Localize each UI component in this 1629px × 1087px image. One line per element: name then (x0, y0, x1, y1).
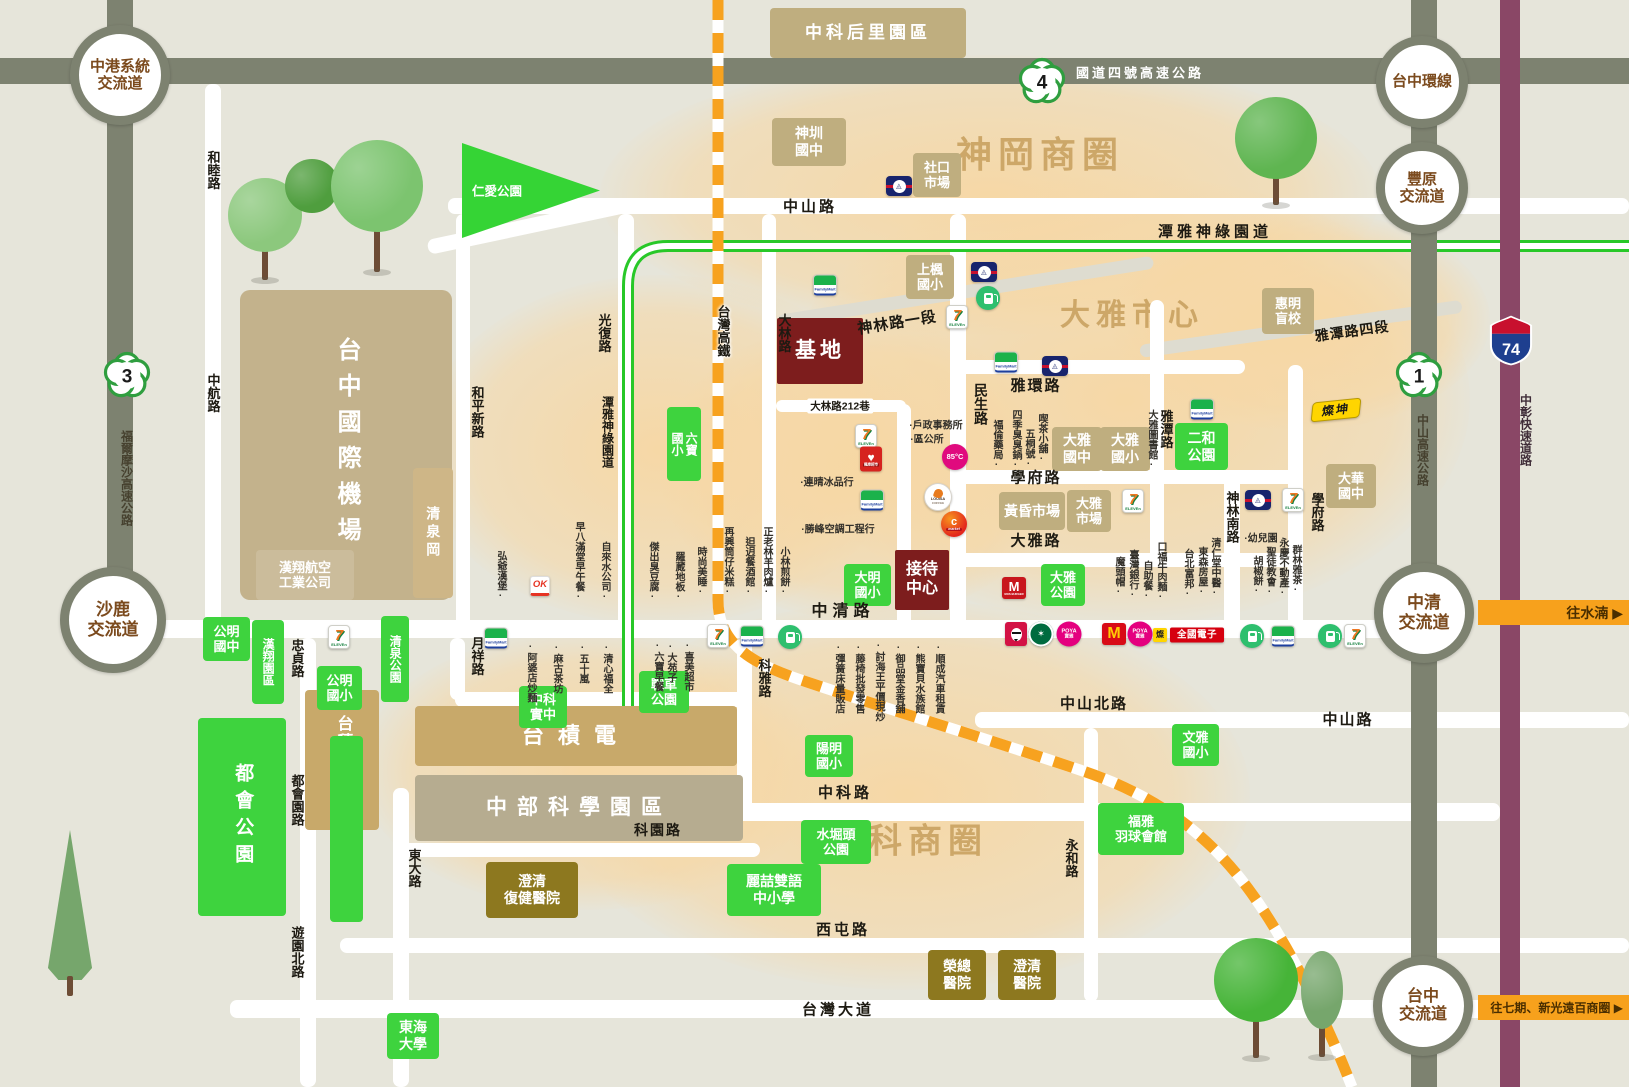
poya-icon: POYA寶雅 (1057, 622, 1082, 647)
tree-icon (41, 830, 99, 1000)
block-label: 榮總 醫院 (943, 958, 971, 991)
road-label: 台灣大道 (802, 999, 874, 1020)
highway-label: 福爾摩沙高速公路 (119, 430, 136, 526)
ok-mart-icon: OK (530, 576, 550, 596)
block-label: 中科后里園區 (805, 23, 931, 43)
85c-cafe-icon: 85°C (942, 444, 968, 470)
block-label: 公明 國小 (326, 673, 352, 704)
park-school-block: 文雅 國小 (1172, 724, 1219, 766)
carrefour-market-icon: cmarket (941, 511, 967, 537)
facility-block: 大雅 國小 (1100, 427, 1150, 471)
tree-icon (285, 159, 339, 219)
block-label: 大雅 公園 (1050, 570, 1076, 601)
park-school-block: 六寶 國小 (667, 407, 701, 481)
facility-block: 社口 市場 (913, 153, 961, 197)
block-label: 大明 國小 (854, 570, 880, 601)
park-school-block: 東海 大學 (387, 1013, 439, 1059)
road-label: 雅潭路 (1157, 410, 1176, 449)
gas-station-icon (778, 625, 802, 649)
poi-label: 四季臭臭鍋· (1010, 410, 1020, 471)
road-keyuan (400, 843, 760, 857)
road-label: 中航路 (204, 374, 223, 413)
district-label: 神岡商圈 (956, 126, 1124, 178)
poi-label: 自來水公司· (599, 542, 609, 603)
poi-label: ·討海王平價現炒 (873, 641, 883, 722)
poi-label: 口福牛肉麵· (1155, 542, 1165, 603)
tree-icon (331, 140, 423, 278)
block-label: 文雅 國小 (1182, 730, 1208, 761)
poi-label: 胡椒餅· (1251, 556, 1261, 597)
poi-label: 時尚美睡· (695, 547, 705, 598)
facility-block: 上楓 國小 (906, 255, 954, 299)
svg-text:74: 74 (1502, 341, 1520, 359)
pxmart-icon: ◬ (1245, 490, 1271, 510)
road-label: 科園路 (634, 820, 682, 840)
park-school-block: 二和 公園 (1175, 423, 1228, 470)
road-label: 科雅路 (755, 659, 774, 698)
block-label: 福雅 羽球會館 (1115, 814, 1167, 845)
seven-eleven-icon: 7ELEVEn (1344, 624, 1366, 648)
park-school-block: 福雅 羽球會館 (1098, 803, 1184, 855)
block-label: 大雅 國小 (1111, 432, 1139, 465)
block-label: 上楓 國小 (917, 262, 943, 293)
block-label: 基地 (795, 339, 845, 364)
block-label: 澄清 復健醫院 (504, 873, 560, 906)
fengkang-supermarket-icon: ♥楓康超市 (860, 447, 882, 472)
block-label: 中部科學園區 (486, 796, 672, 821)
block-label: 六寶 國小 (670, 432, 698, 456)
highway-label: 國道四號高速公路 (1076, 63, 1204, 82)
poi-label: ·麻古茶坊 (551, 643, 561, 694)
road-label: 中山路 (1322, 709, 1373, 730)
national-highway-shield: 1 (1393, 350, 1445, 407)
national-highway-shield: 4 (1016, 56, 1068, 113)
block-label: 社口 市場 (924, 160, 950, 191)
pxmart-icon: ◬ (886, 176, 912, 196)
poi-label: ·幼兒園 (1244, 530, 1277, 545)
seven-eleven-icon: 7ELEVEn (1122, 489, 1144, 513)
block-label: 漢翔航空 工業公司 (279, 560, 331, 591)
interchange-circle: 中清 交流道 (1374, 563, 1474, 663)
park-school-block: 大雅 公園 (1041, 564, 1085, 606)
road-label: 中山路 (783, 196, 837, 217)
national-highway-shield: 3 (101, 350, 153, 407)
park-school-block: 清泉公園 (381, 616, 409, 702)
tkec-flag-icon: 燦坤 (1311, 398, 1362, 423)
park-school-block: 公明 國中 (203, 617, 250, 661)
park-school-block: 都會公園 (198, 718, 286, 916)
road-zhongke (620, 803, 1500, 821)
seven-eleven-icon: 7ELEVEn (946, 305, 968, 329)
poi-label: ·順成汽車租賃 (933, 643, 943, 714)
road-daya (950, 553, 1300, 567)
block-label: 漢翔園區 (261, 638, 275, 686)
park-school-block: 公明 國小 (317, 666, 362, 710)
poi-label: 臺灣銀行· (1127, 550, 1137, 601)
louisa-coffee-icon: LOUISACOFFEE (924, 483, 952, 511)
poi-label: 羅蕆地板· (673, 552, 683, 603)
road-label: 潭雅神綠園道 (1158, 221, 1272, 242)
poi-label: ·熊寶貝水族館 (913, 643, 923, 714)
road-label: 遊園北路 (288, 926, 307, 978)
svg-text:4: 4 (1037, 73, 1048, 94)
familymart-icon: FamilyMart (484, 628, 508, 649)
poi-label: ·連晴冰品行 (800, 474, 853, 489)
expressway-shield: 74 (1488, 316, 1534, 371)
road-label: 民生路 (971, 383, 991, 425)
poi-label: 𨑨迌餐酒館· (743, 537, 753, 598)
road-label: 大林路 (775, 314, 794, 353)
seven-eleven-icon: 7ELEVEn (855, 424, 877, 448)
poya-icon: POYA寶雅 (1128, 622, 1153, 647)
block-label: 大雅 國中 (1063, 432, 1091, 465)
poi-label: ·大苑子 (665, 642, 675, 683)
familymart-icon: FamilyMart (740, 626, 764, 647)
gas-station-icon (1318, 624, 1342, 648)
facility-block: 中部科學園區 (415, 775, 743, 841)
road-yuexiang (450, 638, 465, 700)
road-label: 忠貞路 (288, 639, 307, 678)
familymart-icon: FamilyMart (1190, 399, 1214, 420)
poi-label: 永慶不動產· (1277, 538, 1287, 599)
facility-block: 中科后里園區 (770, 8, 966, 58)
tree-icon (228, 178, 302, 286)
district-label: 大雅市心 (1060, 290, 1204, 334)
poi-label: 東森房屋· (1196, 547, 1206, 598)
map-canvas: 神岡商圈大雅市心中科商圈中港系統 交流道台中環線豐原 交流道沙鹿 交流道中清 交… (0, 0, 1629, 1087)
seven-eleven-icon: 7ELEVEn (1282, 488, 1304, 512)
facility-block: 台積電 (415, 706, 737, 766)
facility-block: 惠明 盲校 (1262, 288, 1314, 334)
road-zhongshan-north (975, 712, 1629, 728)
road-label: 都會園路 (288, 774, 307, 826)
seven-eleven-icon: 7ELEVEn (707, 624, 729, 648)
pxmart-icon: ◬ (971, 262, 997, 282)
interchange-circle: 台中環線 (1376, 36, 1468, 128)
block-label: 都會公園 (231, 763, 253, 871)
poi-label: ·區公所 (910, 431, 943, 446)
poi-label: ·清心福全 (601, 643, 611, 694)
block-label: 清泉岡 (425, 506, 442, 560)
park-school-block: 漢翔園區 (252, 620, 284, 704)
familymart-icon: FamilyMart (1271, 626, 1295, 647)
familymart-icon: FamilyMart (994, 352, 1018, 373)
road-label: 中科路 (818, 782, 872, 803)
poi-label: ·藤椅批發零售 (853, 643, 863, 714)
poi-label: 弘爺漢堡· (495, 551, 505, 602)
road-sci-north (455, 692, 748, 707)
kfc-icon (1005, 622, 1027, 646)
park-school-block: 陽明 國小 (805, 735, 853, 777)
road-label: 西屯路 (816, 919, 870, 940)
park-school-block: 水堀頭 公園 (801, 820, 871, 864)
facility-block: 大雅 國中 (1052, 427, 1102, 471)
facility-block: 黃昏市場 (999, 492, 1065, 530)
poi-label: 福倫藥局· (991, 420, 1001, 471)
poi-label: ·勝峰空調工程行 (801, 521, 874, 536)
road-label: 大林路212巷 (807, 399, 873, 414)
facility-block: 榮總 醫院 (928, 950, 986, 1000)
poi-label: 早八滿堂早午餐· (573, 522, 583, 603)
block-label: 大華 國中 (1338, 471, 1364, 502)
poi-label: 正老林羊肉爐· (761, 527, 771, 598)
facility-block: 大華 國中 (1326, 464, 1376, 508)
facility-block: 澄清 復健醫院 (486, 862, 578, 918)
familymart-icon: FamilyMart (813, 275, 837, 296)
block-label: 澄清 醫院 (1013, 958, 1041, 991)
svg-text:3: 3 (122, 367, 133, 388)
poi-label: ·御品堂金香舖 (893, 643, 903, 714)
road-label: 神林南路 (1223, 491, 1242, 543)
poi-label: ·戶政事務所 (909, 417, 962, 432)
poi-label: 大雅圖書館· (1146, 410, 1156, 471)
poi-label: 再興筒仔米糕· (722, 527, 732, 598)
block-label: 清泉公園 (388, 635, 402, 683)
block-label: 黃昏市場 (1004, 503, 1060, 520)
direction-banner: 往七期、新光遠百商圈 ▶ (1478, 995, 1629, 1020)
block-label: 神圳 國中 (795, 125, 823, 158)
park-school-block (330, 736, 363, 922)
block-label: 陽明 國小 (816, 741, 842, 772)
road-label: 中清路 (811, 597, 874, 621)
facility-block: 澄清 醫院 (998, 950, 1056, 1000)
poi-label: 小林煎餅· (778, 547, 788, 598)
highway-label: 中彰快速道路 (1518, 394, 1535, 466)
poi-label: ·喜美超市 (682, 641, 692, 692)
quanguo-electronics-icon: 全國電子 (1170, 628, 1224, 643)
road-label: 學府路 (1308, 493, 1327, 532)
poi-label: ·彈簧床量販店 (833, 643, 843, 714)
block-label: 水堀頭 公園 (816, 827, 855, 858)
block-label: 接待 中心 (906, 561, 938, 599)
facility-block: 大雅 市場 (1067, 490, 1111, 532)
block-label: 台中國際機場 (332, 337, 360, 553)
block-label: 東海 大學 (399, 1019, 427, 1052)
interchange-circle: 豐原 交流道 (1376, 142, 1468, 234)
site-block: 接待 中心 (895, 550, 949, 610)
mcdonalds-icon: M (1102, 623, 1126, 645)
mos-burger-icon: MMOS BURGER (1002, 577, 1026, 599)
block-label: 二和 公園 (1188, 430, 1216, 463)
poi-label: 台北富邦· (1182, 549, 1192, 600)
block-label: 公明 國中 (213, 624, 239, 655)
interchange-circle: 台中 交流道 (1373, 956, 1473, 1056)
road-guangfu (618, 214, 634, 638)
poi-label: 魔頭帽· (1113, 557, 1123, 598)
poi-label: ·五十嵐 (577, 643, 587, 684)
poi-label: ·六寶早餐 (652, 641, 662, 692)
road-label: 中山北路 (1060, 693, 1128, 714)
gas-station-icon (976, 286, 1000, 310)
poi-label: 傑出臭豆腐· (647, 542, 657, 603)
seven-eleven-icon: 7ELEVEn (328, 625, 350, 649)
highway-label: 中山高速公路 (1415, 414, 1432, 486)
road-yonghe (1084, 728, 1098, 1002)
interchange-circle: 中港系統 交流道 (70, 25, 170, 125)
poi-label: 喫茶小舖· (1036, 414, 1046, 465)
facility-block: 神圳 國中 (772, 118, 846, 166)
block-label: 惠明 盲校 (1275, 296, 1301, 327)
starbucks-icon: ✶ (1029, 622, 1054, 647)
poi-label: 聖徒教會· (1264, 547, 1274, 598)
poi-label: ·阿婆店炒麵 (525, 642, 535, 703)
direction-banner: 往水湳 ▶ (1478, 600, 1629, 625)
park-label: 仁愛公園 (472, 181, 522, 200)
block-label: 麗喆雙語 中小學 (746, 873, 802, 906)
interchange-circle: 沙鹿 交流道 (60, 567, 166, 673)
poi-label: 自助餐· (1141, 561, 1151, 602)
road-label: 和平新路 (468, 386, 487, 438)
block-label: 大雅 市場 (1076, 496, 1102, 527)
road-label: 東大路 (405, 849, 424, 888)
park-school-block: 麗喆雙語 中小學 (727, 864, 821, 916)
facility-block: 漢翔航空 工業公司 (256, 550, 354, 600)
expressway-74 (1500, 0, 1520, 1087)
familymart-icon: FamilyMart (860, 490, 884, 511)
road-label: 光復路 (595, 314, 614, 353)
road-label: 潭雅神綠園道 (600, 396, 617, 468)
road-label: 和睦路 (204, 151, 223, 190)
poi-label: 清仁堂中醫· (1209, 538, 1219, 599)
poi-label: 群林雅茶· (1290, 545, 1300, 596)
svg-text:1: 1 (1414, 367, 1425, 388)
tkec-icon: 燦 (1153, 628, 1167, 642)
poi-label: 五桐號· (1023, 429, 1033, 470)
road-label: 雅環路 (1010, 375, 1061, 396)
gas-station-icon (1240, 624, 1264, 648)
road-xuefu (950, 470, 1298, 484)
road-label: 台灣高鐵 (714, 305, 733, 357)
tree-icon (1235, 97, 1317, 211)
facility-block: 清泉岡 (413, 468, 453, 598)
road-label: 永和路 (1062, 839, 1081, 878)
pxmart-icon: ◬ (1042, 356, 1068, 376)
road-label: 大雅路 (1010, 530, 1061, 551)
